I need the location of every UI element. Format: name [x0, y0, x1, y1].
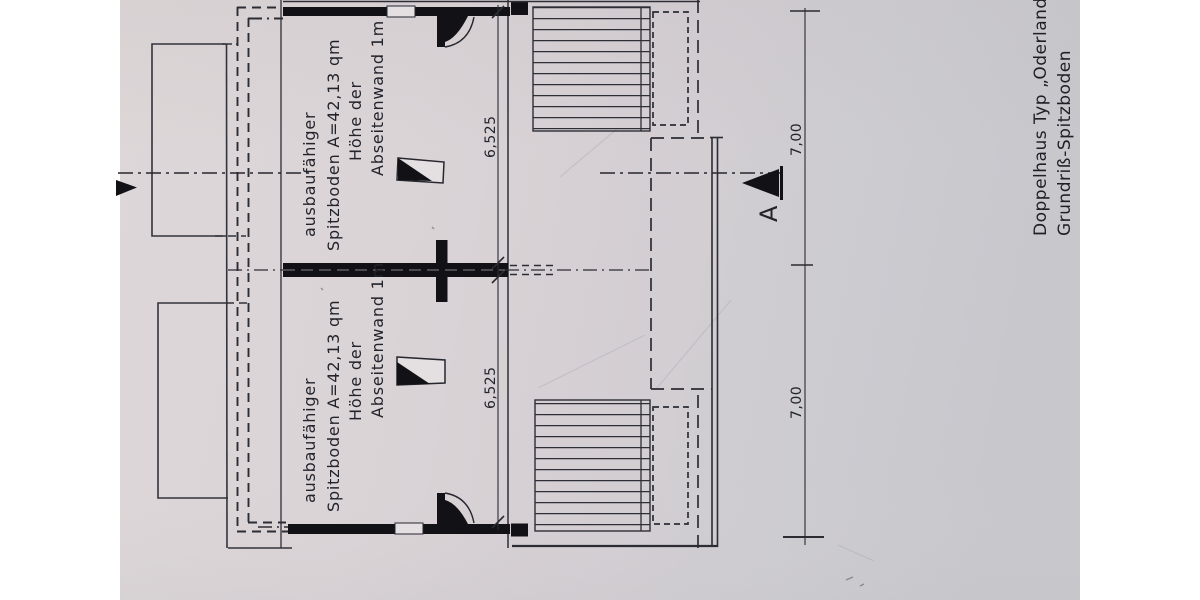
stair-house2: [535, 400, 650, 531]
room2-label-line4: Abseitenwand 1m: [368, 262, 387, 418]
dim-outer-width-house2: 7,00: [789, 386, 805, 419]
dim-inner-width-house2: 6,525: [483, 366, 499, 409]
section-letter: A: [755, 205, 783, 222]
dim-inner-width-house1: 6,525: [483, 115, 499, 158]
window-house2: [395, 523, 423, 534]
room2-label-line3: Höhe der: [346, 341, 365, 421]
room2-label-line1: ausbaufähiger: [300, 378, 319, 503]
window-house1: [387, 6, 415, 17]
room2-label-line2: Spitzboden A=42,13 qm: [324, 300, 343, 512]
room1-label-line1: ausbaufähiger: [300, 112, 319, 237]
room1-label-line3: Höhe der: [346, 81, 365, 161]
scanned-floorplan-page: ausbaufähiger Spitzboden A=42,13 qm Höhe…: [0, 0, 1200, 600]
floorplan-drawing: ausbaufähiger Spitzboden A=42,13 qm Höhe…: [0, 0, 1200, 600]
plan-title-line2: Grundriß-Spitzboden: [1055, 50, 1075, 236]
stair-house1: [533, 7, 650, 131]
roof-window-symbol-house1: [397, 158, 444, 183]
dim-outer-width-house1: 7,00: [789, 123, 805, 156]
roof-window-symbol-house2: [397, 357, 445, 385]
room1-label-line4: Abseitenwand 1m: [368, 20, 387, 176]
room1-label-line2: Spitzboden A=42,13 qm: [324, 39, 343, 251]
plan-title-line1: Doppelhaus Typ „Oderland“: [1031, 0, 1051, 236]
chimney: [436, 240, 448, 302]
